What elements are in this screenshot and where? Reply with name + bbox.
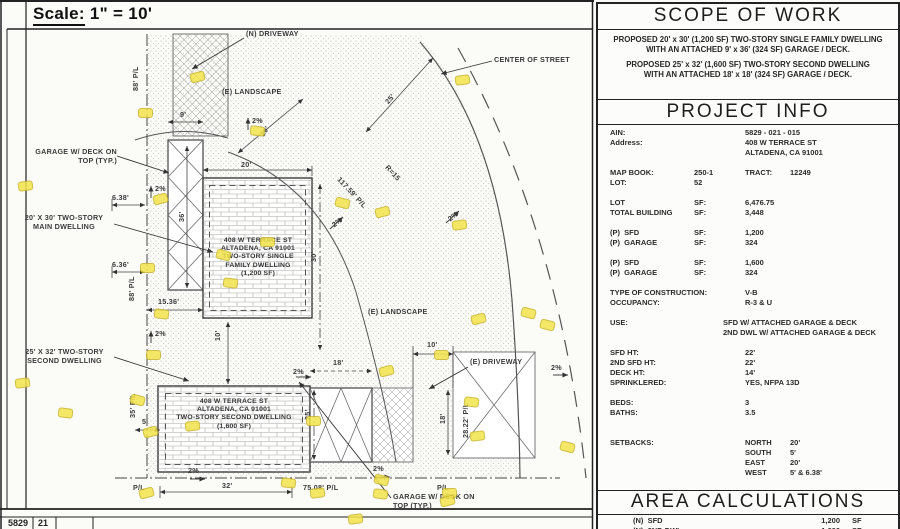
project-info-cell: 5829 - 021 - 015: [745, 128, 800, 137]
project-info-row: [598, 188, 898, 198]
project-info-cell: OCCUPANCY:: [610, 298, 660, 307]
highlight-mark: [434, 350, 449, 360]
project-info-cell: 5' & 6.38': [790, 468, 822, 477]
project-info-cell: 324: [745, 268, 758, 277]
slope-2pct-5: 2%: [155, 329, 166, 338]
project-info-cell: SETBACKS:: [610, 438, 654, 447]
scale-value: 1" = 10': [90, 4, 152, 23]
project-info-cell: R-3 & U: [745, 298, 772, 307]
project-info-cell: V-B: [745, 288, 758, 297]
project-info-row: LOTSF:6,476.75: [598, 198, 898, 208]
project-info-cell: 3: [745, 398, 749, 407]
area-calculation-cell: SF: [852, 516, 862, 525]
highlight-mark: [138, 108, 153, 118]
project-info-row: SETBACKS:NORTH20': [598, 438, 898, 448]
slope-2pct-6: 2%: [293, 367, 304, 376]
highlight-mark: [260, 237, 275, 247]
project-info-row: [598, 278, 898, 288]
slope-2pct-1: 2%: [252, 116, 263, 125]
dim-32ft: 32': [222, 481, 232, 490]
highlight-mark: [451, 219, 467, 231]
dim-20ft-top: 20': [241, 160, 251, 169]
highlight-mark: [463, 396, 479, 408]
project-info-row: AIN:5829 - 021 - 015: [598, 128, 898, 138]
project-info-cell: USE:: [610, 318, 628, 327]
project-info-cell: SF:: [694, 208, 706, 217]
project-info-cell: 12249: [790, 168, 811, 177]
area-calculation-cell: (N) SFD: [633, 516, 663, 525]
project-info-cell: AIN:: [610, 128, 625, 137]
project-info-cell: NORTH: [745, 438, 772, 447]
highlight-mark: [469, 430, 485, 442]
dim-5ft: 5': [142, 417, 148, 426]
project-info-cell: SFD W/ ATTACHED GARAGE & DECK: [723, 318, 857, 327]
project-info-row: SOUTH5': [598, 448, 898, 458]
project-info-cell: ALTADENA, CA 91001: [745, 148, 823, 157]
site-plan-sheet: Scale: 1" = 10' 408 W TERRACE STALTADENA…: [0, 0, 900, 529]
slope-2pct-9: 2%: [551, 363, 562, 372]
main-dwelling-text-line: (1,200 SF): [205, 270, 311, 278]
project-info-row: USE:SFD W/ ATTACHED GARAGE & DECK: [598, 318, 898, 328]
second-dwelling-text-line: 408 W TERRACE ST: [160, 398, 308, 406]
project-info-cell: SFD HT:: [610, 348, 639, 357]
label-garage-deck-bottom: GARAGE W/ DECK ON TOP (TYP.): [393, 492, 475, 510]
divider: [598, 124, 898, 125]
project-info-cell: 408 W TERRACE ST: [745, 138, 817, 147]
project-info-row: (P) GARAGESF:324: [598, 238, 898, 248]
project-info-row: TYPE OF CONSTRUCTION:V-B: [598, 288, 898, 298]
project-info-row: [598, 308, 898, 318]
project-info-row: TOTAL BUILDINGSF:3,448: [598, 208, 898, 218]
divider: [598, 514, 898, 515]
project-info-row: [598, 428, 898, 438]
project-info-row: OCCUPANCY:R-3 & U: [598, 298, 898, 308]
label-e-landscape-mid: (E) LANDSCAPE: [368, 307, 428, 316]
project-info-cell: 250-1: [694, 168, 713, 177]
dim-6-36ft: 6.36': [112, 260, 129, 269]
east-driveway-hatch: [372, 388, 413, 462]
project-info-row: WEST5' & 6.38': [598, 468, 898, 478]
titleblock-page-number: 21: [38, 518, 48, 528]
project-info-cell: 1,600: [745, 258, 764, 267]
project-info-cell: SOUTH: [745, 448, 771, 457]
project-info-cell: 52: [694, 178, 702, 187]
label-e-driveway: (E) DRIVEWAY: [470, 357, 522, 366]
highlight-mark: [57, 407, 73, 419]
project-info-cell: WEST: [745, 468, 767, 477]
scale-note: Scale: 1" = 10': [33, 4, 152, 24]
second-dwelling-label: 408 W TERRACE STALTADENA, CA 91001TWO-ST…: [160, 398, 308, 431]
project-info-cell: 20': [790, 458, 800, 467]
project-info-cell: SPRINKLERED:: [610, 378, 666, 387]
project-info-cell: SF:: [694, 198, 706, 207]
project-info-cell: (P) GARAGE: [610, 268, 657, 277]
project-info-cell: BEDS:: [610, 398, 633, 407]
project-info-cell: LOT: [610, 198, 625, 207]
project-info-row: BEDS:3: [598, 398, 898, 408]
highlight-mark: [249, 125, 265, 137]
area-calculations-title: AREA CALCULATIONS: [598, 491, 898, 513]
project-info-cell: 3.5: [745, 408, 755, 417]
project-info-cell: 2ND DWL W/ ATTACHED GARAGE & DECK: [723, 328, 876, 337]
project-info-row: (P) SFDSF:1,200: [598, 228, 898, 238]
project-info-cell: BATHS:: [610, 408, 638, 417]
project-info-cell: TRACT:: [745, 168, 772, 177]
project-info-row: [598, 158, 898, 168]
project-info-row: 2ND DWL W/ ATTACHED GARAGE & DECK: [598, 328, 898, 338]
highlight-mark: [347, 513, 363, 525]
dim-10ft-between: 10': [213, 331, 222, 341]
project-info-cell: 3,448: [745, 208, 764, 217]
area-calculation-row: (N) SFD1,200SF: [598, 516, 898, 526]
highlight-mark: [306, 416, 321, 426]
main-dwelling-text-line: FAMILY DWELLING: [205, 262, 311, 270]
project-info-row: 2ND SFD HT:22': [598, 358, 898, 368]
project-info-row: BATHS:3.5: [598, 408, 898, 418]
highlight-mark: [140, 263, 155, 273]
project-info-row: EAST20': [598, 458, 898, 468]
project-info-cell: Address:: [610, 138, 643, 147]
project-info-row: DECK HT:14': [598, 368, 898, 378]
highlight-mark: [146, 350, 161, 360]
project-info-cell: TOTAL BUILDING: [610, 208, 673, 217]
second-dwelling-text-line: ALTADENA, CA 91001: [160, 406, 308, 414]
label-center-of-street: CENTER OF STREET: [494, 55, 570, 64]
project-info-cell: SF:: [694, 228, 706, 237]
divider: [598, 99, 898, 100]
main-dwelling-text-line: 408 W TERRACE ST: [205, 237, 311, 245]
project-info-row: LOT:52: [598, 178, 898, 188]
highlight-mark: [14, 377, 30, 389]
info-panel: SCOPE OF WORK PROPOSED 20' x 30' (1,200 …: [596, 2, 900, 529]
project-info-cell: DECK HT:: [610, 368, 645, 377]
label-garage-deck-top: GARAGE W/ DECK ON TOP (TYP.): [22, 147, 117, 165]
scope-paragraph: PROPOSED 20' x 30' (1,200 SF) TWO-STORY …: [606, 35, 890, 55]
project-info-title: PROJECT INFO: [598, 101, 898, 123]
project-info-row: MAP BOOK:250-1TRACT:12249: [598, 168, 898, 178]
dim-18ft-driveway: 18': [438, 414, 447, 424]
highlight-mark: [153, 308, 169, 320]
project-info-cell: 2ND SFD HT:: [610, 358, 656, 367]
project-info-cell: (P) GARAGE: [610, 238, 657, 247]
scope-paragraph: PROPOSED 25' x 32' (1,600 SF) TWO-STORY …: [606, 60, 890, 80]
project-info-cell: TYPE OF CONSTRUCTION:: [610, 288, 707, 297]
dim-18ft-garage: 18': [333, 358, 343, 367]
dim-88ft-pl-upper: 88' P/L: [131, 66, 140, 91]
highlight-mark: [454, 74, 470, 86]
project-info-cell: SF:: [694, 268, 706, 277]
slope-2pct-7: 2%: [188, 466, 199, 475]
project-info-cell: 5': [790, 448, 796, 457]
highlight-mark: [184, 420, 200, 432]
project-info-row: SFD HT:22': [598, 348, 898, 358]
dim-30ft: 30': [309, 252, 318, 262]
dim-6-38ft: 6.38': [112, 193, 129, 202]
project-info-row: ALTADENA, CA 91001: [598, 148, 898, 158]
project-info-cell: 1,200: [745, 228, 764, 237]
second-dwelling-text-line: (1,600 SF): [160, 423, 308, 431]
dim-15-36ft: 15.36': [158, 297, 179, 306]
project-info-rows: AIN:5829 - 021 - 015Address:408 W TERRAC…: [598, 128, 898, 478]
project-info-row: [598, 218, 898, 228]
scope-of-work-title: SCOPE OF WORK: [598, 5, 898, 27]
north-driveway-hatch: [173, 34, 228, 136]
highlight-mark: [372, 488, 388, 500]
titleblock-sheet-number: 5829: [8, 518, 28, 528]
project-info-cell: MAP BOOK:: [610, 168, 654, 177]
label-second-dwelling: 25' X 32' TWO-STORY SECOND DWELLING: [12, 347, 117, 365]
highlight-mark: [309, 487, 325, 499]
project-info-cell: EAST: [745, 458, 765, 467]
project-info-cell: LOT:: [610, 178, 627, 187]
divider: [598, 29, 898, 30]
project-info-row: [598, 418, 898, 428]
project-info-cell: 22': [745, 348, 755, 357]
label-main-dwelling: 20' X 30' TWO-STORY MAIN DWELLING: [14, 213, 114, 231]
dim-88ft-pl-lower: 88' P/L: [127, 276, 136, 301]
dim-36ft: 36': [177, 212, 186, 222]
project-info-cell: (P) SFD: [610, 228, 639, 237]
project-info-cell: YES, NFPA 13D: [745, 378, 800, 387]
highlight-mark: [222, 277, 238, 289]
highlight-mark: [17, 180, 33, 192]
label-e-landscape-top: (E) LANDSCAPE: [222, 87, 282, 96]
project-info-row: [598, 388, 898, 398]
project-info-cell: 22': [745, 358, 755, 367]
area-calculation-cell: 1,200: [796, 516, 840, 525]
scale-word: Scale:: [33, 4, 85, 26]
project-info-cell: 20': [790, 438, 800, 447]
slope-2pct-2: 2%: [155, 184, 166, 193]
project-info-cell: 324: [745, 238, 758, 247]
project-info-row: (P) SFDSF:1,600: [598, 258, 898, 268]
project-info-row: SPRINKLERED:YES, NFPA 13D: [598, 378, 898, 388]
dim-10ft-driveway: 10': [427, 340, 437, 349]
project-info-cell: SF:: [694, 258, 706, 267]
project-info-row: (P) GARAGESF:324: [598, 268, 898, 278]
project-info-cell: 6,476.75: [745, 198, 774, 207]
project-info-cell: SF:: [694, 238, 706, 247]
label-n-driveway: (N) DRIVEWAY: [246, 29, 299, 38]
project-info-row: [598, 248, 898, 258]
area-calculation-rows: (N) SFD1,200SF(N) 2ND DWL1,600SF: [598, 516, 898, 529]
dim-28-22-pl: 28.22' P/L: [461, 403, 470, 438]
second-dwelling-text-line: TWO-STORY SECOND DWELLING: [160, 414, 308, 422]
project-info-row: [598, 338, 898, 348]
highlight-mark: [280, 477, 296, 489]
slope-2pct-8: 2%: [373, 464, 384, 473]
dim-9ft: 9': [180, 110, 186, 119]
project-info-cell: 14': [745, 368, 755, 377]
project-info-cell: (P) SFD: [610, 258, 639, 267]
project-info-row: Address:408 W TERRACE ST: [598, 138, 898, 148]
